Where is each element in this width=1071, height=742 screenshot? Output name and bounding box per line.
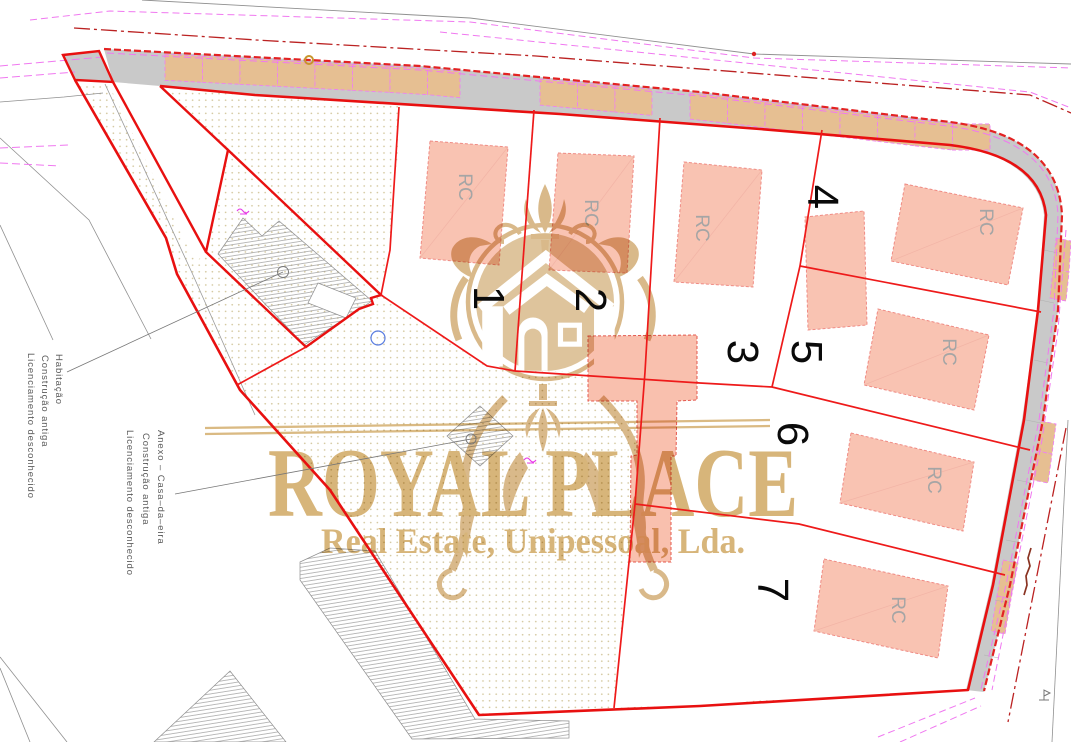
svg-text:Construção antiga: Construção antiga [39, 355, 50, 447]
svg-text:7: 7 [748, 578, 797, 602]
svg-text:3: 3 [718, 340, 767, 364]
svg-text:RC: RC [887, 596, 908, 623]
svg-text:RC: RC [454, 173, 475, 200]
svg-text:RC: RC [938, 338, 959, 365]
svg-text:RC: RC [691, 214, 712, 241]
svg-text:Real Estate, Unipessoal, Lda.: Real Estate, Unipessoal, Lda. [321, 521, 745, 561]
svg-text:2: 2 [566, 288, 615, 312]
svg-text:RC: RC [580, 199, 601, 226]
svg-text:Anexo – Casa–da–eira: Anexo – Casa–da–eira [155, 430, 166, 545]
svg-text:Construção antiga: Construção antiga [140, 433, 151, 525]
svg-text:5: 5 [782, 340, 831, 364]
svg-text:Licenciamento desconhecido: Licenciamento desconhecido [25, 353, 36, 499]
svg-text:Licenciamento desconhecido: Licenciamento desconhecido [124, 430, 135, 576]
svg-text:1: 1 [464, 286, 513, 310]
svg-text:4: 4 [798, 185, 847, 209]
svg-text:6: 6 [768, 422, 817, 446]
svg-text:Habitação: Habitação [53, 354, 64, 405]
svg-text:RC: RC [923, 466, 944, 493]
svg-text:RC: RC [975, 208, 996, 235]
